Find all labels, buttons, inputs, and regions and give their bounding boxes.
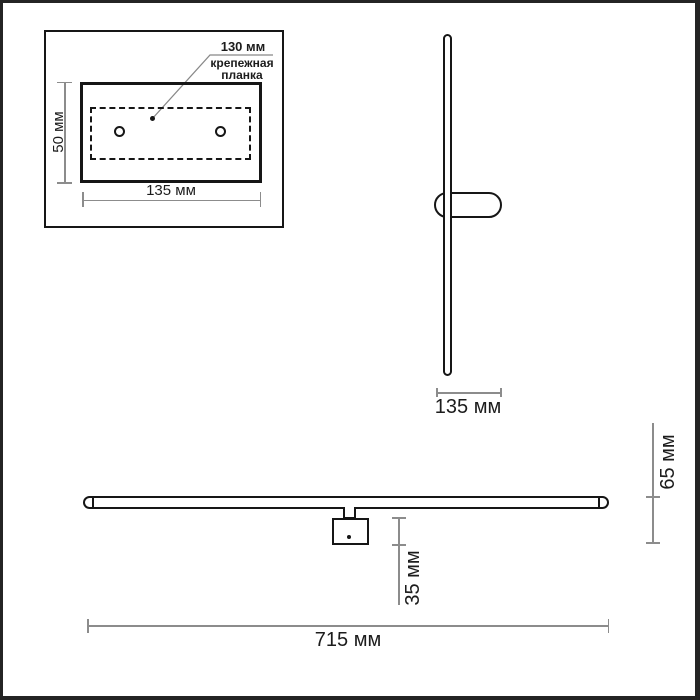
length-dim-tick-left [87,619,89,633]
plate-height-dim-tick-bottom [57,182,72,184]
bracket-dim-tick-bottom [392,544,406,546]
bracket-dim-line [398,518,400,605]
depth-dim-line [652,423,654,543]
bracket-dim-tick-top [392,517,406,519]
mounting-hole-right [215,126,226,137]
plate-width-dim-tick-right [260,192,262,207]
side-view-light-bar [443,34,452,376]
dimension-diagram-canvas: 130 мм крепежная планка 50 мм 135 мм 135… [0,0,700,700]
plate-width-dim-tick-left [82,192,84,207]
plate-width-dim-line [82,200,261,202]
length-label: 715 мм [288,630,408,650]
bar-endcap-seam-right [598,498,600,508]
plate-height-label: 50 мм [51,102,67,162]
length-dim-tick-right [608,619,610,633]
mounting-plate-detail-inset: 130 мм крепежная планка 50 мм 135 мм [44,30,284,228]
side-width-dim-line [436,392,501,394]
depth-label: 65 мм [658,432,678,492]
bar-endcap-seam-left [92,498,94,508]
plate-width-label: 135 мм [121,183,221,199]
mount-box-screw-dot [347,535,351,539]
bracket-depth-label: 35 мм [403,548,423,608]
front-view-mount-box [332,518,369,545]
mounting-hole-left [114,126,125,137]
length-dim-line [87,625,609,627]
depth-dim-tick-bottom [646,542,660,544]
side-width-label: 135 мм [428,397,508,417]
hole-spacing-label: 130 мм [203,39,283,54]
depth-dim-tick-top [646,496,660,498]
callout-leader-dot [150,116,155,121]
plate-height-dim-tick-top [57,82,72,84]
part-name-label: крепежная планка [192,58,292,81]
part-name-line2: планка [192,70,292,82]
